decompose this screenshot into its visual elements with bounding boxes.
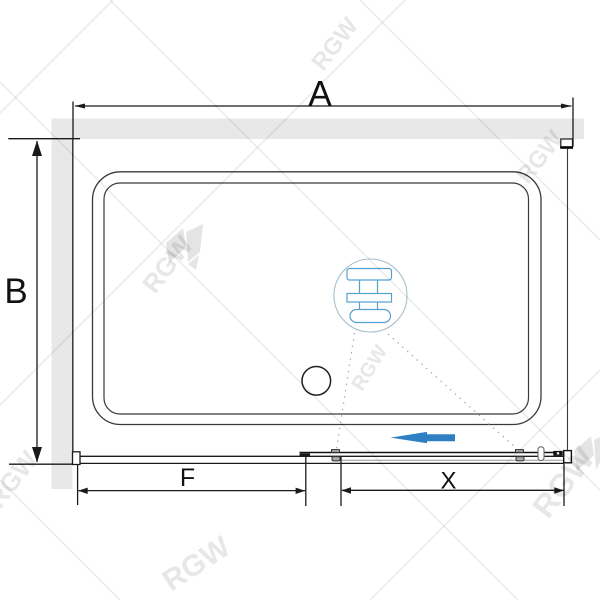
svg-text:F: F — [180, 464, 195, 492]
svg-text:X: X — [440, 468, 456, 495]
svg-text:B: B — [4, 272, 27, 311]
